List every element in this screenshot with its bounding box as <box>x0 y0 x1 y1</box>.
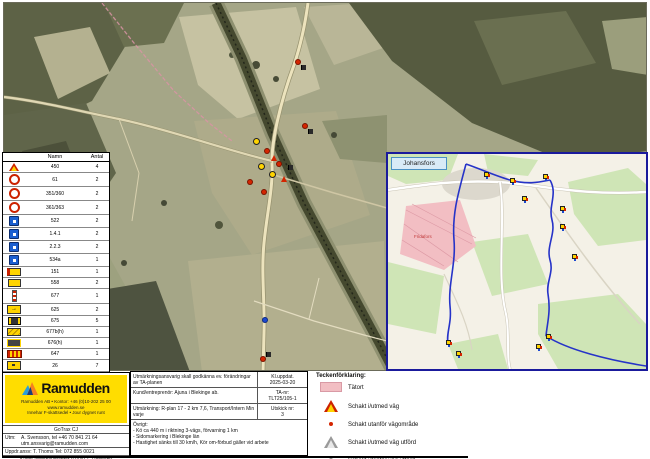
cluster-sign-dot <box>538 349 541 352</box>
flag-map-marker <box>266 352 271 357</box>
ta-number-cell: TA-nr: TLT25/105-1 <box>257 388 307 404</box>
blue-square-icon <box>9 255 19 265</box>
yellow-arrow-icon: → <box>7 305 21 314</box>
legend-sign-count: 2 <box>85 173 109 187</box>
dig-legend-item: Schakt utanför vägområde <box>320 420 482 430</box>
yellow-red-plate-icon <box>7 268 21 276</box>
cluster-sign-dot <box>562 229 565 232</box>
inset-sign-cluster <box>446 340 454 348</box>
legend-sign-name: 522 <box>25 215 85 228</box>
flag-map-marker <box>288 165 293 170</box>
inset-sign-cluster <box>484 172 492 180</box>
ramudden-address-line-1: Ramudden AB • Kontor: +46 (0)10-202 25 0… <box>5 399 127 405</box>
sign-r-map-marker <box>281 176 287 182</box>
marker-post-icon <box>12 290 17 302</box>
sign-r-map-marker <box>271 155 277 161</box>
legend-sign-count: 1 <box>85 338 109 349</box>
legend-sign-count: 1 <box>85 254 109 267</box>
legend-sign-count: 7 <box>85 360 109 372</box>
legend-sign-name: 676(h) <box>25 338 85 349</box>
inset-sign-cluster <box>543 174 551 182</box>
legend-sign-count: 4 <box>85 162 109 173</box>
legend-row: →6252 <box>3 304 109 316</box>
blue-map-marker <box>263 318 267 322</box>
legend-row: 2.2.32 <box>3 241 109 254</box>
dig-legend-item: Schakt i/utmed väg <box>320 400 482 414</box>
legend-count-column-header: Antal <box>85 153 109 162</box>
prohibition-ring-icon <box>9 188 20 199</box>
blue-square-icon <box>9 216 19 226</box>
dig-legend-label: Schakt i/utmed väg <box>348 404 399 410</box>
issue-value: 3 <box>281 412 284 418</box>
utmarkning-contact-row: Utm: A. Svensson, tel +46 70 841 21 64 u… <box>3 433 129 447</box>
legend-sign-name: 26 <box>25 360 85 372</box>
cone-map-marker <box>277 162 281 166</box>
cluster-sign-dot <box>486 177 489 180</box>
cluster-sign-dot <box>524 201 527 204</box>
utm-label: Utm: <box>5 435 19 447</box>
cluster-sign-dot <box>562 211 565 214</box>
inset-sign-cluster <box>560 206 568 214</box>
legend-sign-name: 61 <box>25 173 85 187</box>
legend-row: 676(h)1 <box>3 338 109 349</box>
legend-row: 6755 <box>3 316 109 327</box>
legend-name-column-header: Namn <box>25 153 85 162</box>
prohibition-ring-icon <box>9 174 20 185</box>
inset-sign-cluster <box>546 334 554 342</box>
legend-sign-name: 1.4.1 <box>25 228 85 241</box>
legend-row: 351/3602 <box>3 187 109 201</box>
legend-sign-count: 2 <box>85 278 109 289</box>
sign-y-map-marker <box>253 138 260 145</box>
dig-legend-title: Teckenförklaring: <box>314 371 482 382</box>
legend-row: 4504 <box>3 162 109 173</box>
legend-sign-count: 1 <box>85 349 109 360</box>
ta-number-value: TLT25/105-1 <box>268 396 296 402</box>
legend-sign-count: 2 <box>85 241 109 254</box>
inset-sign-cluster <box>560 224 568 232</box>
yellow-rect-icon <box>8 279 21 287</box>
client-row: Kund/entreprenör: Ajuna i Blekinge ab. <box>131 388 257 404</box>
legend-sign-name: 361/363 <box>25 201 85 215</box>
sign-y-map-marker <box>269 171 276 178</box>
legend-header-row: Namn Antal <box>3 153 109 162</box>
dark-plate-icon <box>8 317 21 325</box>
uppdrag-contact-row: Uppdr.ansv: T. Thoms Tel: 072 855 0021 <box>3 447 129 455</box>
flag-map-marker <box>308 129 313 134</box>
legend-sign-name: 2.2.3 <box>25 241 85 254</box>
ramudden-title-block: Ramudden Ramudden AB • Kontor: +46 (0)10… <box>2 372 130 456</box>
ramudden-address-line-3: Innehar F-skattsedel • Jour dygnet runt <box>5 410 127 416</box>
legend-row: 534a1 <box>3 254 109 267</box>
updated-cell: Kl.uppdat. 2025-03-20 <box>257 372 307 388</box>
legend-sign-name: 558 <box>25 278 85 289</box>
legend-sign-name: 677b(h) <box>25 327 85 338</box>
legend-row: 361/3632 <box>3 201 109 215</box>
warn-triangle-icon <box>9 163 19 171</box>
cluster-sign-dot <box>548 339 551 342</box>
location-row: Utmärkning: R-plan 17 - 2 km 7,6, Transp… <box>131 404 257 420</box>
legend-sign-name: 151 <box>25 267 85 278</box>
legend-row: 612 <box>3 173 109 187</box>
inset-overview-map: Johansfors Fridafors <box>386 152 648 371</box>
legend-sign-name: 450 <box>25 162 85 173</box>
legend-row: 6471 <box>3 349 109 360</box>
cone-map-marker <box>262 190 266 194</box>
dig-legend-label: Schakt i/utmed väg utförd <box>348 440 416 446</box>
ta-plan-sheet: Namn Antal 4504612351/3602361/363252221.… <box>0 0 650 459</box>
legend-row: 5582 <box>3 278 109 289</box>
blue-square-icon <box>9 242 19 252</box>
legend-row: 6771 <box>3 289 109 304</box>
dig-legend-label: Tätort <box>348 385 364 391</box>
legend-sign-name: 647 <box>25 349 85 360</box>
cluster-sign-dot <box>448 345 451 348</box>
dig-legend-item: Schakt i/utmed väg utförd <box>320 436 482 450</box>
gotrax-system-label: GoTrax CJ <box>3 425 129 433</box>
legend-sign-name: 534a <box>25 254 85 267</box>
dig-legend-item: Tätort <box>320 382 482 394</box>
legend-row: 267 <box>3 360 109 372</box>
yellow-barrier-icon <box>7 328 21 336</box>
active-dig-triangle-icon <box>320 400 342 414</box>
legend-row: 677b(h)1 <box>3 327 109 338</box>
dig-legend: Teckenförklaring: TätortSchakt i/utmed v… <box>314 371 482 459</box>
dark-barrier-icon <box>7 339 21 347</box>
legend-row: 5222 <box>3 215 109 228</box>
cluster-sign-dot <box>458 356 461 359</box>
cone-map-marker <box>261 357 265 361</box>
yellow-plate-icon <box>7 361 21 370</box>
other-note-line: - Hastighet sänks till 30 km/h, Kör om-f… <box>133 440 305 446</box>
cluster-sign-dot <box>512 183 515 186</box>
legend-sign-count: 1 <box>85 267 109 278</box>
legend-sign-count: 1 <box>85 289 109 304</box>
updated-value: 2025-03-20 <box>270 380 296 386</box>
active-dig-dot-icon <box>320 422 342 428</box>
legend-icon-column-header <box>3 153 25 162</box>
legend-sign-count: 1 <box>85 327 109 338</box>
prohibition-ring-icon <box>9 202 20 213</box>
inset-sign-cluster <box>522 196 530 204</box>
legend-row: 1.4.12 <box>3 228 109 241</box>
legend-sign-count: 2 <box>85 215 109 228</box>
legend-sign-name: 677 <box>25 289 85 304</box>
plan-note: Utmärkningsansvarig skall godkänna ev. f… <box>131 372 257 388</box>
dig-legend-label: Schakt utanför vägområde <box>348 422 418 428</box>
cone-map-marker <box>248 180 252 184</box>
sign-y-map-marker <box>258 163 265 170</box>
striped-barrier-icon <box>7 350 22 358</box>
tatort-swatch-icon <box>320 382 342 394</box>
legend-row: 1511 <box>3 267 109 278</box>
inset-place-label: Johansfors <box>391 157 447 170</box>
ramudden-logo-panel: Ramudden Ramudden AB • Kontor: +46 (0)10… <box>5 375 127 423</box>
legend-sign-count: 5 <box>85 316 109 327</box>
cluster-sign-dot <box>574 259 577 262</box>
legend-sign-name: 675 <box>25 316 85 327</box>
cone-map-marker <box>303 124 307 128</box>
sheet-bottom-border <box>2 456 468 458</box>
flag-map-marker <box>301 65 306 70</box>
ramudden-brand-text: Ramudden <box>41 380 109 396</box>
legend-sign-count: 2 <box>85 228 109 241</box>
issue-cell: Utskick nr: 3 <box>257 404 307 420</box>
inset-sign-cluster <box>572 254 580 262</box>
legend-sign-name: 625 <box>25 304 85 316</box>
inset-sign-cluster <box>536 344 544 352</box>
blue-square-icon <box>9 229 19 239</box>
inset-tatort-label: Fridafors <box>414 234 432 239</box>
legend-sign-name: 351/360 <box>25 187 85 201</box>
inset-sign-cluster <box>456 351 464 359</box>
done-dig-triangle-icon <box>320 436 342 450</box>
legend-sign-count: 2 <box>85 201 109 215</box>
inset-sign-cluster <box>510 178 518 186</box>
ramudden-logo-icon <box>22 382 38 395</box>
inset-imagery <box>388 154 646 369</box>
cone-map-marker <box>265 149 269 153</box>
cone-map-marker <box>296 60 300 64</box>
utm-contact-email: utm.ansvarig@ramudden.com <box>21 441 88 447</box>
plan-info-block: Utmärkningsansvarig skall godkänna ev. f… <box>130 371 308 456</box>
legend-sign-count: 2 <box>85 187 109 201</box>
other-notes-list: - Kö ca 440 m i riktning 3-vägs, förvarn… <box>133 428 305 446</box>
legend-sign-count: 2 <box>85 304 109 316</box>
cluster-sign-dot <box>545 179 548 182</box>
